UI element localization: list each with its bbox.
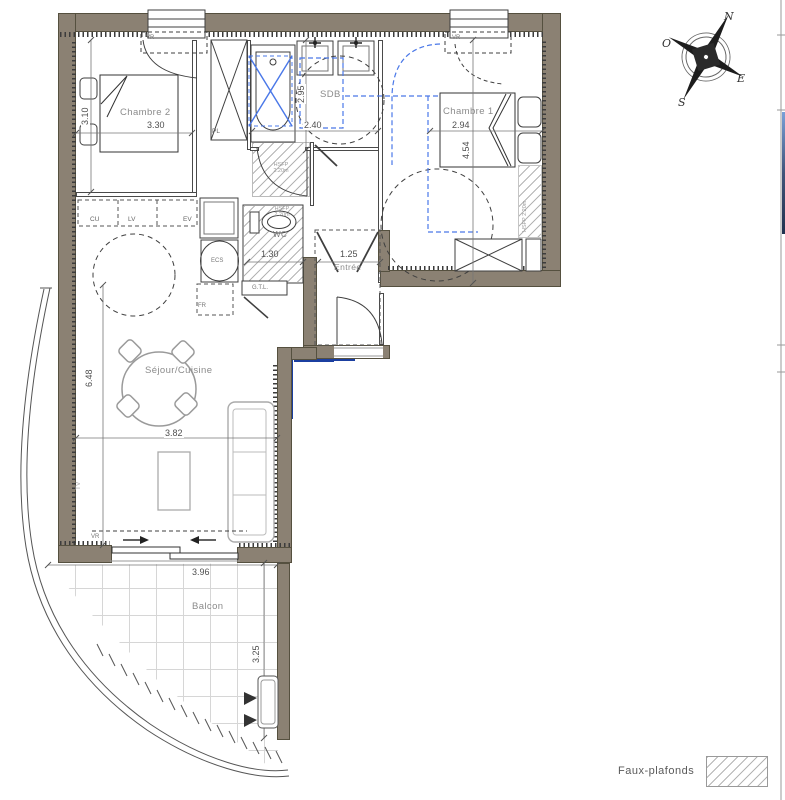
legend-faux-plafonds-label: Faux-plafonds — [618, 765, 694, 777]
hsfp-note-hall: HSFP 2.20m — [258, 162, 304, 175]
compass-south-label: S — [678, 96, 686, 109]
bathtub — [251, 45, 295, 142]
compass-east-label: E — [736, 72, 745, 85]
pl-label-chambre2: PL — [212, 129, 220, 136]
room-label-chambre2: Chambre 2 — [120, 108, 171, 118]
nightstands-chambre1 — [518, 97, 541, 163]
room-label-wc: WC — [273, 231, 287, 239]
window-chambre2 — [148, 10, 205, 38]
hsfp-note-wc-l1: HSFP — [275, 206, 290, 212]
dim-sejour-height: 6.48 — [85, 368, 94, 388]
plan-linework-layer: N E S O — [0, 0, 785, 800]
room-label-chambre1: Chambre 1 — [443, 107, 494, 117]
dim-chambre2-height: 3.10 — [81, 106, 90, 126]
dim-sdb-height: 2.95 — [297, 84, 306, 104]
cu-label: CU — [90, 217, 99, 224]
room-label-entree: Entrée — [334, 263, 361, 272]
door-leaf-wc — [244, 297, 268, 318]
hsfp-note-wc-l2: 2.20m — [274, 212, 289, 218]
entry-door — [334, 297, 383, 356]
ecs-label: ECS — [211, 258, 223, 264]
room-label-balcon: Balcon — [192, 602, 223, 612]
dim-sdb-width: 2.40 — [303, 121, 323, 130]
tv-label: TV — [76, 482, 83, 490]
closet-pl-chambre1 — [455, 239, 541, 271]
kitchen-tall-unit — [200, 198, 238, 238]
compass-north-label: N — [723, 10, 734, 23]
hsfp-note-hall-l2: 2.20m — [273, 168, 288, 174]
door-arc-chambre2 — [143, 40, 197, 78]
compass-rose: N E S O — [646, 0, 765, 119]
legend-faux-plafonds-swatch — [706, 756, 768, 787]
dim-balcon-height: 3.25 — [252, 644, 261, 664]
room-label-sejour: Séjour/Cuisine — [145, 366, 212, 376]
dim-entree-width: 1.25 — [339, 250, 359, 259]
dim-wc-width: 1.30 — [260, 250, 280, 259]
door-arc-chambre1 — [455, 44, 503, 84]
washbasin-left — [297, 37, 333, 75]
floorplan-page: { "rooms": { "chambre2": {"label": "Cham… — [0, 0, 785, 800]
dim-chambre1-width: 2.94 — [451, 121, 471, 130]
dining-set — [115, 338, 198, 426]
bed-chambre1 — [440, 93, 515, 167]
dim-balcon-width: 3.96 — [191, 568, 211, 577]
closet-pl-chambre2 — [211, 40, 247, 140]
fridge-fr-outline — [197, 284, 233, 315]
hsfp-note-hall-l1: HSFP — [274, 162, 289, 168]
sofa — [228, 402, 274, 542]
vr-label-sejour: VR — [91, 534, 99, 540]
sliding-direction-arrows — [123, 536, 216, 544]
gtl-label: G.T.L. — [252, 285, 268, 291]
door-leaf-sejour — [315, 145, 337, 166]
dim-chambre1-height: 4.54 — [462, 140, 471, 160]
dim-sejour-width: 3.82 — [164, 429, 184, 438]
compass-west-label: O — [662, 37, 671, 50]
balcony-chairs — [244, 692, 257, 727]
ev-label: EV — [183, 217, 192, 224]
hsfp-note-wc: HSFP 2.20m — [262, 206, 302, 219]
room-label-sdb: SDB — [320, 90, 341, 100]
fr-label: FR — [198, 303, 206, 309]
balcony-table — [258, 676, 278, 728]
window-chambre1 — [450, 10, 508, 38]
vr-label-chambre1: VR — [452, 35, 460, 41]
dim-chambre2-width: 3.30 — [146, 121, 166, 130]
turning-circle-kitchen — [93, 234, 175, 316]
coffee-table — [158, 452, 190, 510]
lv-label: LV — [128, 217, 135, 224]
hsfp-note-chambre1: HSFP 2.20m — [522, 201, 528, 232]
vr-label-chambre2: VR — [146, 35, 154, 41]
sliding-bay-window — [92, 531, 247, 561]
